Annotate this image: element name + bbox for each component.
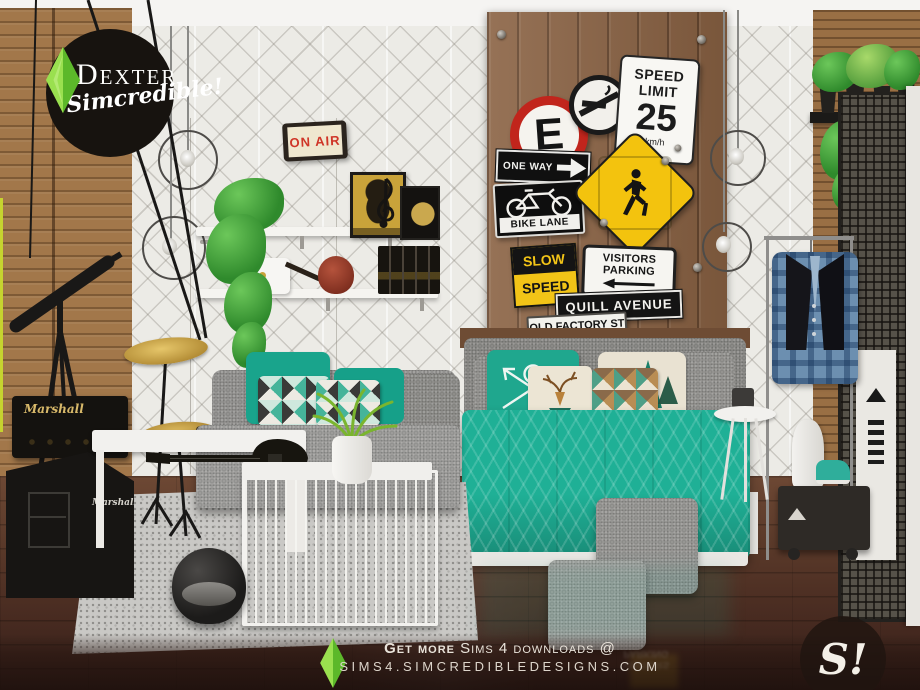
vest-left-panel: [786, 254, 812, 350]
crate-arrow-icon: [788, 508, 806, 520]
caster-wheel: [846, 548, 858, 560]
vinyl-box-set: [378, 246, 440, 294]
duvet-reflection: [480, 566, 730, 636]
screw-icon: [697, 35, 706, 44]
partition-frame: [906, 86, 920, 626]
gold-record-frame: [400, 186, 440, 240]
one-way-label: ONE WAY: [498, 160, 553, 173]
ukulele-body: [318, 256, 354, 294]
plumbob-icon: [44, 44, 82, 116]
label-arrow-icon: [866, 388, 886, 402]
parking-arrow-icon: [600, 277, 656, 291]
bike-lane-label: BIKE LANE: [499, 214, 580, 233]
visitors-line2: PARKING: [585, 263, 673, 278]
plaid-shirt: [772, 252, 858, 384]
amp-cabinet: Marshall: [6, 452, 134, 598]
stool-leg: [744, 418, 747, 502]
helmet-visor: [182, 582, 236, 606]
rolling-crate: [778, 486, 870, 550]
speed-limit-value: 25: [617, 96, 695, 139]
caster-wheel: [788, 548, 800, 560]
amp-brand-label: Marshall: [24, 402, 84, 416]
vest-right-panel: [818, 254, 844, 350]
white-table-leg: [96, 450, 104, 548]
one-way-arrow-icon: [554, 155, 588, 180]
wire-table: [242, 470, 438, 626]
cabinet-handle-bar: [28, 516, 66, 518]
footer-text: Get more Sims 4 downloads @ SIMS4.SIMCRE…: [330, 640, 670, 674]
footer-line1: Get more Sims 4 downloads @: [330, 640, 670, 657]
pendant-bulb: [729, 148, 744, 165]
footer-url: SIMS4.SIMCREDIBLEDESIGNS.COM: [330, 659, 670, 674]
clothes-rack-bar: [764, 236, 854, 240]
badge-label: S!: [819, 635, 868, 684]
on-air-label: ON AIR: [287, 125, 342, 158]
vest-button: [812, 332, 816, 336]
treble-clef-icon: [368, 176, 404, 230]
shelf-bracket: [420, 298, 424, 311]
vest-button: [812, 304, 816, 308]
on-air-sign: ON AIR: [282, 120, 348, 161]
clothes-rack-pole: [766, 238, 769, 560]
screw-icon: [497, 30, 506, 39]
helmet: [172, 548, 246, 624]
shelf-bracket: [300, 236, 304, 249]
pendant-bulb: [716, 236, 731, 253]
label-marks: [868, 420, 884, 464]
screw-icon: [693, 263, 702, 272]
scene: ON AIR E SPEED LIMIT 25 km/h ONE: [0, 0, 920, 690]
vest-button: [812, 318, 816, 322]
pendant-rod: [723, 10, 725, 232]
screw-icon: [674, 144, 681, 151]
shelf-bracket: [326, 298, 330, 311]
white-vase: [332, 436, 372, 484]
cabinet-handle: [28, 492, 70, 548]
pedestrian-icon: [614, 168, 656, 218]
bike-lane-sign: BIKE LANE: [493, 180, 586, 239]
sneakers: [816, 460, 850, 484]
